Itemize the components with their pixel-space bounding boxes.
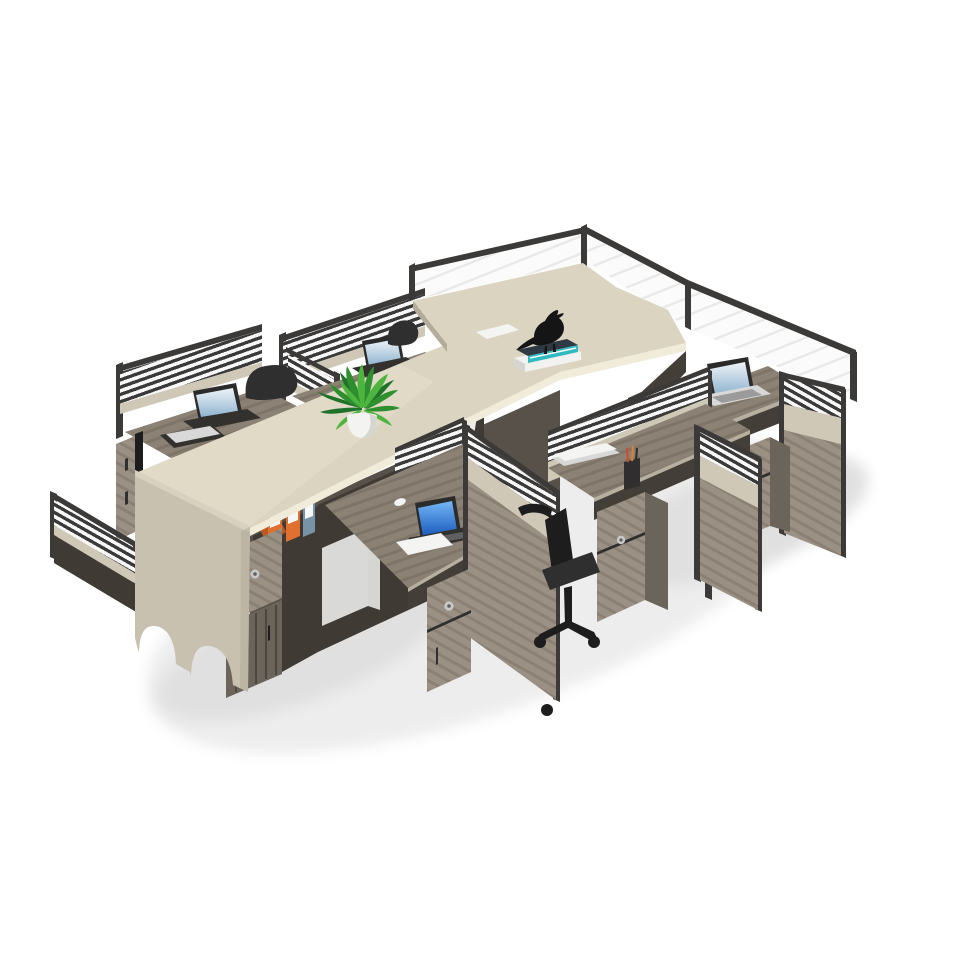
pen-cup (624, 446, 640, 490)
office-workstation-photo (0, 0, 961, 961)
pedestal-cabinet (597, 492, 668, 622)
pedestal-cabinet (427, 568, 471, 692)
product-photo-canvas (0, 0, 961, 961)
